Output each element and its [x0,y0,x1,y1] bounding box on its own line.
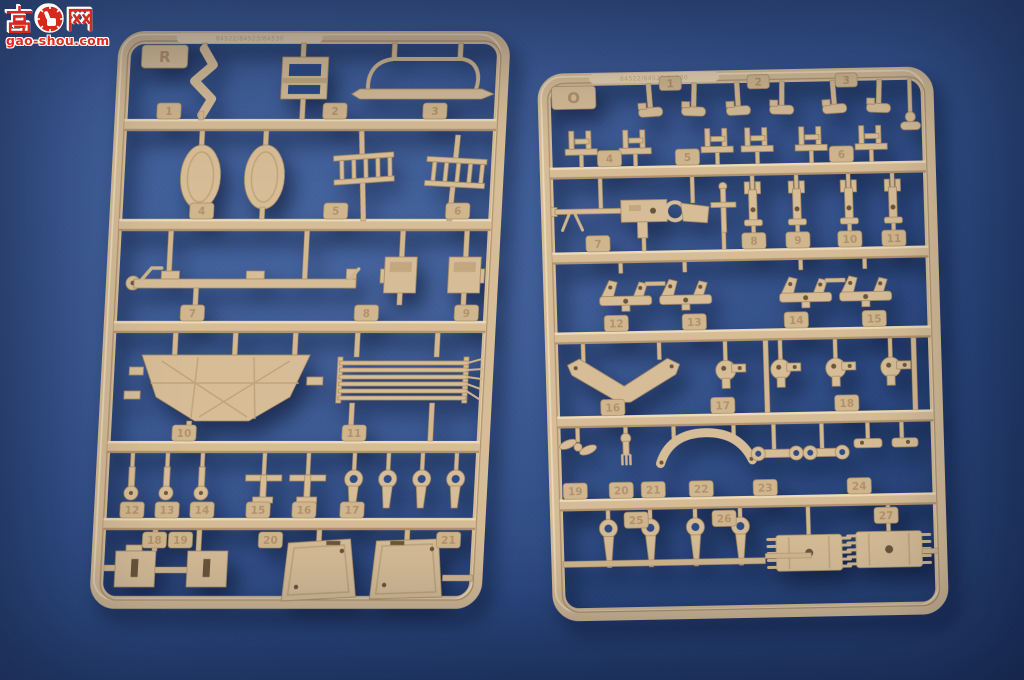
runner [765,553,811,559]
wm-domain-text: gao-shou.com [6,33,110,48]
part-shackle-hook [445,453,466,508]
part-link-bar [645,281,665,285]
svg-text:7: 7 [188,308,196,320]
part-number-tab: 26 [712,510,736,526]
part-number-tab: 3 [423,103,448,119]
svg-text:25: 25 [629,515,644,527]
part-number-tab: 13 [682,314,706,330]
sprue-right: 84522/84523/84530 O [537,66,949,621]
svg-text:21: 21 [441,535,456,547]
part-eye-bar [750,424,803,461]
svg-text:22: 22 [694,484,709,496]
part-number-tab: 19 [563,483,587,499]
part-suspension-arm [779,259,832,308]
part-small-box [447,231,487,305]
part-number-tab: 5 [323,203,348,219]
svg-text:3: 3 [431,106,439,118]
part-clamp-pair [853,422,918,448]
part-number-tab: 5 [675,149,699,165]
part-t-foot [866,79,891,113]
part-number-tab: 20 [609,482,633,498]
part-step-bracket [795,126,828,163]
part-t-foot [636,83,663,118]
svg-text:O: O [567,89,580,107]
part-pedal [288,453,327,503]
part-number-tab: 21 [641,482,665,498]
sprue-rail [103,518,476,530]
part-number-tab: 6 [829,146,853,162]
svg-text:4: 4 [198,206,206,218]
part-shackle-hook [343,453,364,508]
svg-text:15: 15 [250,505,265,517]
svg-text:27: 27 [879,510,894,522]
runner [563,558,765,568]
part-number-tab: 10 [172,425,197,441]
part-number-tab: 8 [742,233,766,249]
part-knuckle [715,341,746,389]
part-number-tab: 14 [784,312,808,328]
part-number-tab: 12 [604,315,628,331]
part-number-tab: 18 [835,395,859,411]
svg-text:13: 13 [159,505,174,517]
svg-text:5: 5 [332,206,340,218]
runner [911,338,918,410]
part-number-tab: 24 [847,478,871,494]
svg-text:26: 26 [717,513,732,525]
part-step-bracket [855,125,888,162]
part-pin-lever [159,453,175,500]
svg-text:2: 2 [754,77,762,89]
part-bent-arm [192,43,214,120]
svg-text:14: 14 [194,505,209,517]
part-tow-shackle [686,509,706,566]
svg-text:9: 9 [794,235,802,247]
part-number-tab: 1 [157,103,182,119]
thumbs-up-gear-icon [35,4,65,34]
svg-text:16: 16 [605,402,620,414]
part-hatch-panel [281,530,359,601]
part-long-beam [125,231,361,305]
svg-text:4: 4 [606,153,614,165]
svg-text:1: 1 [165,106,173,118]
part-pin-lever [194,453,210,500]
svg-text:8: 8 [750,236,758,248]
part-tow-shackle [599,510,619,567]
svg-text:8: 8 [362,308,370,320]
sprue-rail [113,321,486,333]
sprue-rail [107,441,480,453]
svg-text:23: 23 [758,482,773,494]
part-pin-lever [124,453,140,500]
svg-text:5: 5 [684,152,692,164]
svg-text:17: 17 [715,400,730,412]
part-track-link [767,506,851,572]
part-knuckle [825,339,856,387]
svg-text:16: 16 [296,505,311,517]
part-number-tab: 17 [340,502,365,518]
svg-text:84522/84523/84530: 84522/84523/84530 [216,36,284,43]
sprue-letter-tab: O [551,86,596,110]
svg-text:24: 24 [852,481,867,493]
runner [763,341,770,413]
part-number-tab: 16 [601,399,625,415]
part-number-tab: 8 [354,305,379,321]
part-step-bracket [565,131,598,168]
part-pin-foot [899,79,921,130]
part-tow-bar [352,43,497,99]
part-t-foot [770,81,794,114]
part-number-tab: 12 [120,502,145,518]
svg-text:17: 17 [344,505,359,517]
part-step-bracket [701,128,734,165]
part-number-tab: 16 [292,502,317,518]
part-number-tab: 18 [142,532,167,548]
svg-text:19: 19 [173,535,188,547]
part-number-tab: 10 [838,231,862,247]
part-shackle-hook [411,453,432,508]
sprue-rail [124,119,497,131]
part-number-tab: 4 [597,150,621,166]
mold-stamp: 84522/84523/84530 [177,33,324,43]
part-number-tab: 11 [882,230,906,246]
part-number-tab: 4 [189,203,214,219]
wm-char-wang-icon [67,6,94,33]
svg-text:7: 7 [594,239,602,251]
svg-text:11: 11 [346,428,361,440]
photo-stage: 84522/84523/84530 R [0,0,1024,680]
part-number-tab: 2 [323,103,348,119]
svg-text:14: 14 [789,315,804,327]
site-watermark: gao-shou.com [6,4,110,48]
part-small-box [379,231,419,305]
svg-text:18: 18 [147,535,162,547]
wm-char-gao-icon [6,6,33,33]
part-knuckle [880,338,911,386]
part-number-tab: 2 [747,74,769,88]
runner [922,548,938,553]
part-number-tab: 13 [155,502,180,518]
svg-text:1: 1 [666,78,674,90]
svg-text:13: 13 [687,317,702,329]
part-number-tab: 3 [835,73,857,87]
part-number-tab: 9 [786,232,810,248]
sprue-left: 84522/84523/84530 R [89,31,511,609]
part-suspension-arm [599,263,652,312]
svg-text:9: 9 [462,308,470,320]
part-number-tab: 27 [874,507,898,523]
part-step-bracket [619,130,652,167]
svg-text:6: 6 [454,206,462,218]
svg-text:12: 12 [609,318,624,330]
part-number-tab: 1 [659,76,681,90]
part-link-bar [825,278,845,282]
part-number-tab: 7 [586,236,610,252]
part-t-foot [725,81,751,115]
part-number-tab: 11 [342,425,367,441]
part-rect-frame [280,43,330,119]
part-shackle-hook [377,453,398,508]
part-sway-bar [567,342,681,403]
part-step-bracket [741,127,774,164]
part-number-tab: 21 [436,532,461,548]
svg-text:21: 21 [646,485,661,497]
part-number-tab: 23 [753,479,777,495]
part-number-tab: 15 [246,502,271,518]
part-number-tab: 15 [862,310,886,326]
svg-text:19: 19 [568,486,583,498]
part-number-tab: 17 [711,397,735,413]
part-machine-gun [550,177,710,253]
svg-text:10: 10 [176,428,191,440]
part-number-tab: 22 [689,481,713,497]
svg-text:12: 12 [124,505,139,517]
svg-text:11: 11 [886,233,901,245]
part-number-tab: 7 [180,305,205,321]
part-cross-pin [710,182,737,249]
part-propeller-pin [558,428,599,458]
svg-text:10: 10 [842,234,857,246]
svg-text:15: 15 [867,313,882,325]
part-t-foot [681,83,706,117]
part-stowage-basket [122,333,326,441]
sprue-rail [119,219,492,231]
svg-text:R: R [159,48,172,66]
part-number-tab: 6 [445,203,470,219]
part-oval-pad [242,131,287,219]
part-number-tab: 25 [624,512,648,528]
part-eye-bar [802,423,849,460]
svg-text:6: 6 [838,149,846,161]
part-pedal [244,453,283,503]
part-knuckle [770,340,801,388]
svg-text:20: 20 [263,535,278,547]
part-suspension-arm [659,262,712,311]
svg-text:2: 2 [331,106,339,118]
svg-text:18: 18 [839,398,854,410]
part-number-tab: 19 [168,532,193,548]
part-number-tab: 9 [454,305,479,321]
part-suspension-arm [839,258,892,307]
part-number-tab: 14 [190,502,215,518]
sprue-letter-tab: R [141,45,188,68]
svg-text:3: 3 [842,75,850,87]
part-number-tab: 20 [258,532,283,548]
part-fork-pin [620,427,631,464]
part-wishbone-arch [658,425,753,465]
svg-text:20: 20 [614,485,629,497]
